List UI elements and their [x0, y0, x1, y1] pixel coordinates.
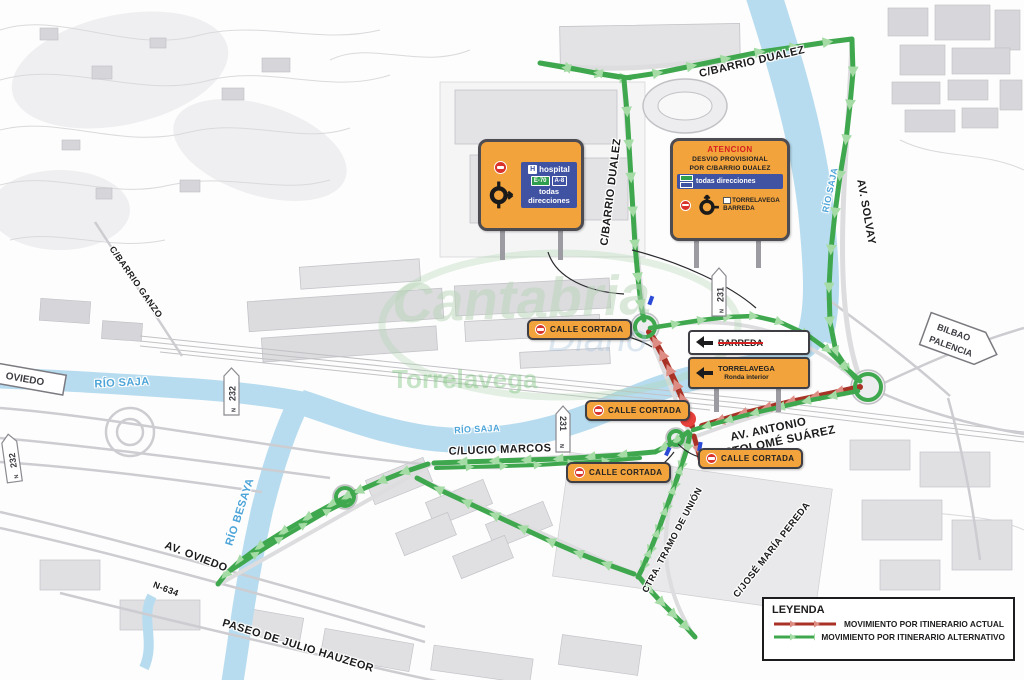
hospital-icon: H	[528, 165, 537, 174]
km-marker-231-b: 231 N	[556, 406, 570, 452]
calle-cortada-box-4: CALLE CORTADA	[698, 448, 803, 469]
hospital-detour-sign: H hospital E-70 A-8 todas direcciones	[478, 139, 584, 231]
hospital-blue-panel: H hospital E-70 A-8 todas direcciones	[521, 162, 577, 208]
badge-a8: A-8	[552, 176, 568, 186]
calle-cortada-label: CALLE CORTADA	[589, 468, 663, 477]
map-base-canvas: 232 N 232 N 231 N 231 N OVIEDO BILBAO PA…	[0, 0, 1024, 680]
svg-text:232: 232	[7, 452, 19, 468]
legend-label-actual: MOVIMIENTO POR ITINERARIO ACTUAL	[844, 619, 1004, 629]
svg-text:N: N	[558, 444, 564, 448]
roundabout-icon	[694, 192, 720, 218]
svg-text:N: N	[720, 309, 726, 313]
no-entry-icon	[494, 161, 507, 174]
km-marker-231-a: 231 N	[712, 268, 726, 316]
calle-cortada-label: CALLE CORTADA	[550, 325, 624, 334]
torrelavega-label: TORRELAVEGA	[718, 365, 775, 374]
legend-label-alternative: MOVIMIENTO POR ITINERARIO ALTERNATIVO	[821, 632, 1005, 642]
hospital-label: hospital	[539, 165, 570, 174]
atencion-line1: DESVIO PROVISIONAL	[677, 156, 783, 163]
roundabout-icon	[485, 179, 515, 209]
svg-text:N: N	[232, 408, 238, 412]
ronda-interior-label: Ronda interior	[718, 374, 775, 381]
legend: LEYENDA MOVIMIENTO POR ITINERARIO ACTUAL…	[762, 597, 1015, 661]
atencion-destinations: TORRELAVEGA BARREDA	[723, 197, 780, 212]
oviedo-sign: OVIEDO	[0, 359, 66, 395]
calle-cortada-box-2: CALLE CORTADA	[585, 400, 690, 421]
no-entry-icon	[706, 453, 717, 464]
atencion-title: ATENCION	[677, 145, 783, 154]
route-badges-mini	[680, 175, 693, 188]
legend-row-actual: MOVIMIENTO POR ITINERARIO ACTUAL	[772, 619, 1005, 629]
left-arrow-icon	[696, 338, 713, 347]
panel-icon	[723, 197, 731, 204]
svg-text:N: N	[14, 474, 20, 479]
calle-cortada-label: CALLE CORTADA	[721, 454, 795, 463]
atencion-blue-strip: todas direcciones	[677, 174, 783, 189]
no-entry-icon	[593, 405, 604, 416]
badge-e70: E-70	[531, 176, 550, 186]
traffic-detour-map: 232 N 232 N 231 N 231 N OVIEDO BILBAO PA…	[0, 0, 1024, 680]
legend-line-alternative	[772, 632, 815, 642]
dest-torrelavega: TORRELAVEGA	[732, 198, 780, 205]
left-arrow-icon	[696, 369, 713, 378]
atencion-todas-direcciones: todas direcciones	[696, 178, 756, 185]
barreda-crossed-label: BARREDA	[718, 338, 763, 348]
svg-text:231: 231	[716, 287, 726, 302]
stadium	[643, 79, 727, 133]
no-entry-icon	[574, 467, 585, 478]
no-entry-icon	[535, 324, 546, 335]
atencion-line2: POR C/BARRIO DUALEZ	[677, 165, 783, 172]
calle-cortada-label: CALLE CORTADA	[608, 406, 682, 415]
no-entry-icon	[680, 200, 691, 211]
torrelavega-direction-sign: TORRELAVEGA Ronda interior	[688, 357, 810, 389]
atencion-detour-sign: ATENCION DESVIO PROVISIONAL POR C/BARRIO…	[670, 138, 790, 241]
barreda-direction-sign: BARREDA	[688, 330, 810, 355]
legend-title: LEYENDA	[772, 604, 1005, 616]
svg-text:231: 231	[558, 416, 568, 431]
dest-barreda: BARREDA	[723, 205, 755, 212]
buildings-topright	[888, 5, 1022, 132]
calle-cortada-box-3: CALLE CORTADA	[566, 462, 671, 483]
legend-line-actual	[772, 619, 838, 629]
todas-direcciones-label: todas direcciones	[524, 188, 574, 205]
legend-row-alternative: MOVIMIENTO POR ITINERARIO ALTERNATIVO	[772, 632, 1005, 642]
calle-cortada-box-1: CALLE CORTADA	[527, 319, 632, 340]
km-marker-232-a: 232 N	[224, 368, 239, 415]
svg-text:232: 232	[228, 386, 238, 401]
